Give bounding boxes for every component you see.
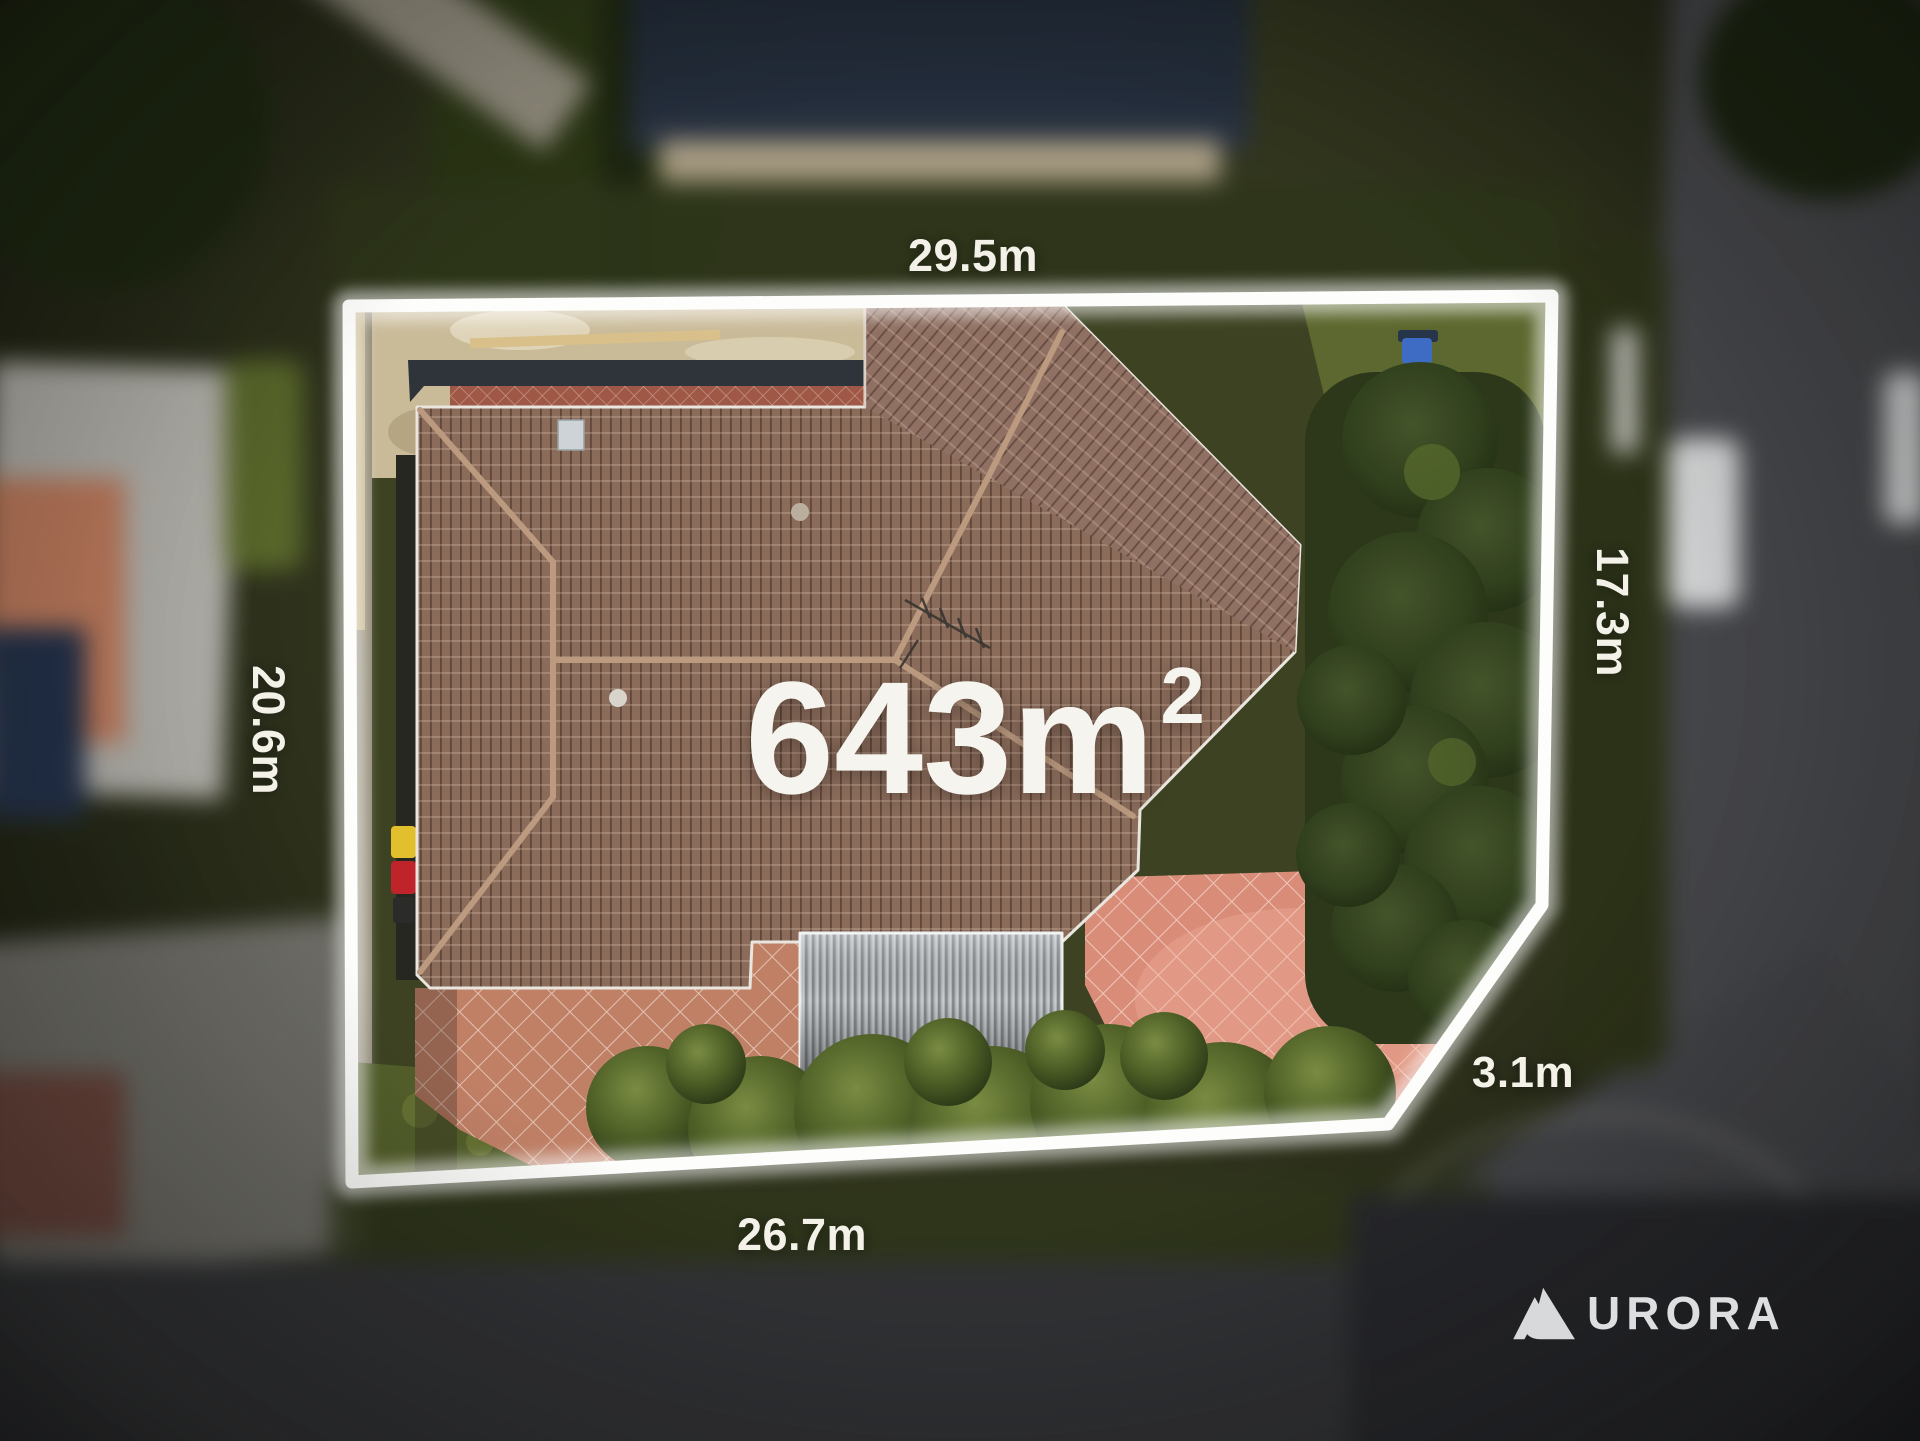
land-area-label: 643m2 — [745, 656, 1205, 818]
logo-triangle-icon — [1512, 1284, 1578, 1342]
land-area-exponent: 2 — [1160, 651, 1205, 740]
aurora-logo: URORA — [1512, 1284, 1786, 1342]
dimension-label-top: 29.5m — [908, 230, 1038, 282]
property-aerial-image: 29.5m 17.3m 20.6m 26.7m 3.1m 643m2 URORA — [0, 0, 1920, 1441]
dimension-label-bottom: 26.7m — [737, 1209, 867, 1261]
dimension-label-corner: 3.1m — [1472, 1048, 1574, 1098]
land-area-value: 643m — [745, 648, 1154, 827]
dimension-label-left: 20.6m — [242, 665, 294, 795]
aurora-logo-text: URORA — [1587, 1286, 1786, 1340]
dimension-label-right: 17.3m — [1586, 547, 1638, 677]
